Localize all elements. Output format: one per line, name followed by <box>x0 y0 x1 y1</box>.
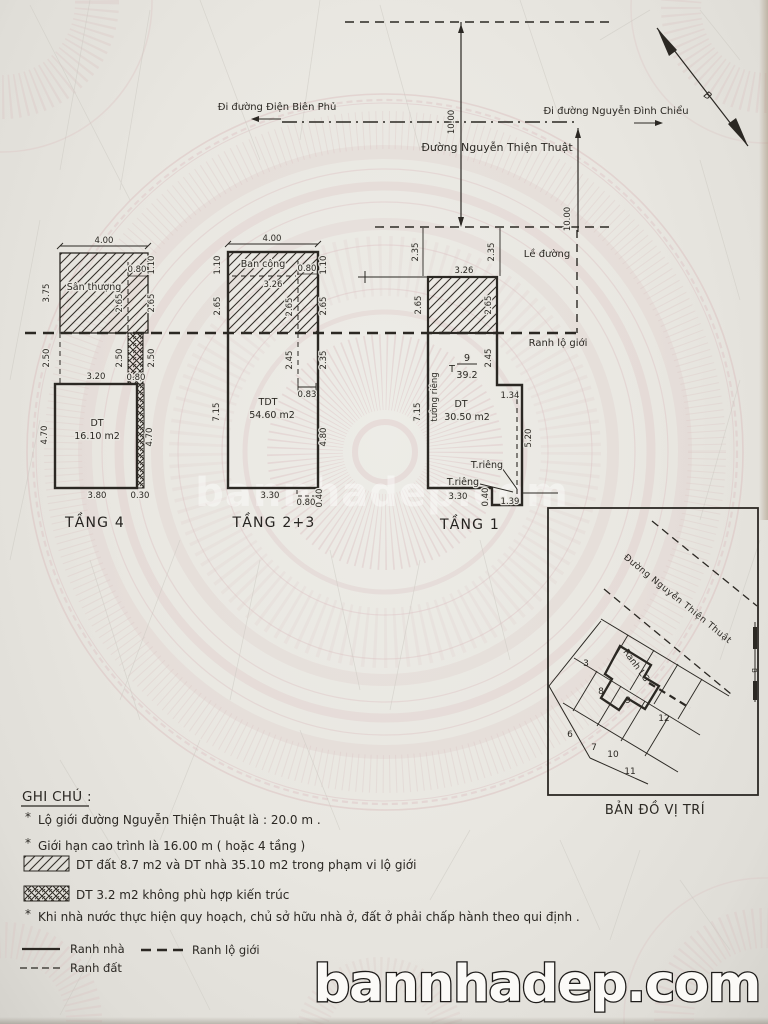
legend-longdash-label: Ranh lộ giới <box>192 943 260 957</box>
arrowhead-right-icon <box>655 120 663 126</box>
photo-edge-right <box>759 0 768 520</box>
area-label: DT <box>454 399 467 410</box>
road-left-label: Đi đường Điện Biên Phủ <box>218 101 337 113</box>
dim: 3.26 <box>264 280 283 290</box>
note-line1: Lộ giới đường Nguyễn Thiện Thuật là : 20… <box>38 813 321 827</box>
dim: 7.15 <box>413 403 423 422</box>
area-value: 30.50 m2 <box>444 412 490 423</box>
drawing-canvas: bannhadep.com Đi đường Điện Biên Phủ Đi … <box>0 0 768 1024</box>
dim: 0.30 <box>131 491 150 501</box>
map-parcel-number: 7 <box>591 743 597 753</box>
parcel-number: 9 <box>464 353 470 364</box>
dim: 2.65 <box>115 294 125 313</box>
scanned-floor-plan-document: bannhadep.com Đi đường Điện Biên Phủ Đi … <box>0 0 768 1024</box>
map-parcel-number: 3 <box>583 659 589 669</box>
map-parcel-number: 12 <box>658 714 669 724</box>
dim: 2.65 <box>484 296 494 315</box>
dim: 2.45 <box>285 351 295 370</box>
dim: 4.70 <box>40 426 50 445</box>
dim: 1.10 <box>213 256 223 275</box>
dim: 1.10 <box>319 256 329 275</box>
site-watermark: bannhadep.com <box>314 955 761 1014</box>
legend-dashed-label: Ranh đất <box>70 961 122 975</box>
dim: 3.75 <box>42 284 52 303</box>
plan-title-tang1: TẦNG 1 <box>439 514 500 533</box>
dim: 7.15 <box>212 403 222 422</box>
nonconforming-strip <box>137 384 144 488</box>
parcel-area: 39.2 <box>456 370 477 381</box>
hatch-swatch <box>24 856 69 871</box>
dim: 3.80 <box>88 491 107 501</box>
dim: 4.80 <box>319 428 329 447</box>
terrace-label: Sân thượng <box>67 282 122 293</box>
dim: 0.80 <box>297 498 316 508</box>
area-label: DT <box>90 418 103 429</box>
dim-road-half-right: 10.00 <box>563 207 573 231</box>
plan-title-tang4: TẦNG 4 <box>64 512 125 531</box>
street-name-label: Đường Nguyễn Thiện Thuật <box>421 141 573 154</box>
dim: 2.50 <box>42 349 52 368</box>
dim: 1.10 <box>147 256 157 275</box>
map-parcel-number: 9 <box>625 696 631 706</box>
note-line2: Giới hạn cao trình là 16.00 m ( hoặc 4 t… <box>38 839 305 853</box>
dim: 0.80 <box>128 265 147 275</box>
map-parcel-number: 8 <box>598 687 604 697</box>
map-parcel-number: 11 <box>624 767 635 777</box>
map-parcel-number: 10 <box>607 750 619 760</box>
dim: 2.35 <box>487 243 497 262</box>
note-hatch: DT đất 8.7 m2 và DT nhà 35.10 m2 trong p… <box>76 858 416 872</box>
notes-heading: GHI CHÚ : <box>22 787 92 805</box>
legend-solid-label: Ranh nhà <box>70 942 125 956</box>
sidewalk-label: Lề đường <box>524 248 570 260</box>
center-watermark: bannhadep.com <box>195 470 569 516</box>
bullet: * <box>25 836 31 850</box>
dim: 4.70 <box>145 428 155 447</box>
dim: 3.30 <box>261 491 280 501</box>
arrowhead-down-icon <box>458 217 464 227</box>
dim: 2.45 <box>484 349 494 368</box>
north-needle-tail <box>728 118 748 146</box>
dim: 4.00 <box>95 236 114 246</box>
arrowhead-left-icon <box>251 116 259 122</box>
dim: 0.83 <box>298 390 317 400</box>
note-line5: Khi nhà nước thực hiện quy hoạch, chủ sở… <box>38 910 580 924</box>
setback-label: Ranh lộ giới <box>529 337 588 349</box>
dim: 2.35 <box>411 243 421 262</box>
area-label: TDT <box>258 397 278 408</box>
road-right-label: Đi đường Nguyễn Đình Chiểu <box>543 104 688 117</box>
wall-label: tường riêng <box>429 372 440 421</box>
map-street-label: Đường Nguyễn Thiện Thuật <box>621 552 733 646</box>
dim: 2.65 <box>414 296 424 315</box>
dim: 5.20 <box>524 429 534 448</box>
bullet: * <box>25 907 31 921</box>
dim: 2.65 <box>213 297 223 316</box>
north-letter: B <box>701 90 713 103</box>
map-title: BẢN ĐỒ VỊ TRÍ <box>605 801 705 818</box>
dim: 2.65 <box>285 298 295 317</box>
dim: 0.80 <box>127 373 146 383</box>
dim: 0.80 <box>298 264 317 274</box>
parcel-prefix: T <box>448 364 455 375</box>
dim: 2.50 <box>115 349 125 368</box>
dim: 3.30 <box>449 492 468 502</box>
balcony-label: Ban công <box>241 259 285 270</box>
note-cross: DT 3.2 m2 không phù hợp kiến trúc <box>76 888 289 902</box>
photo-edge-bottom <box>0 1017 768 1024</box>
dim: 3.26 <box>455 266 474 276</box>
area-value: 16.10 m2 <box>74 431 120 442</box>
t-rieng-upper: T.riêng <box>470 460 503 471</box>
area-value: 54.60 m2 <box>249 410 295 421</box>
dim: 4.00 <box>263 234 282 244</box>
bullet: * <box>25 810 31 824</box>
map-north-letter: B <box>750 668 758 673</box>
t-rieng-lower: T.riêng <box>446 477 479 488</box>
dim: 2.50 <box>147 349 157 368</box>
dim: 2.65 <box>147 294 157 313</box>
dim-road-half-top: 10.00 <box>447 110 457 134</box>
dim: 0.40 <box>481 488 491 507</box>
arrowhead-up-icon <box>575 128 581 138</box>
arrowhead-up-icon <box>458 24 464 33</box>
map-parcel-number: 6 <box>567 730 573 740</box>
dim: 0.40 <box>315 489 325 508</box>
dim: 1.34 <box>501 391 520 401</box>
dim: 3.20 <box>87 372 106 382</box>
plan-title-tang23: TẦNG 2+3 <box>231 512 315 531</box>
dim: 1.39 <box>501 497 520 507</box>
cross-swatch <box>24 886 69 901</box>
dim: 2.35 <box>319 351 329 370</box>
dim: 2.65 <box>319 297 329 316</box>
